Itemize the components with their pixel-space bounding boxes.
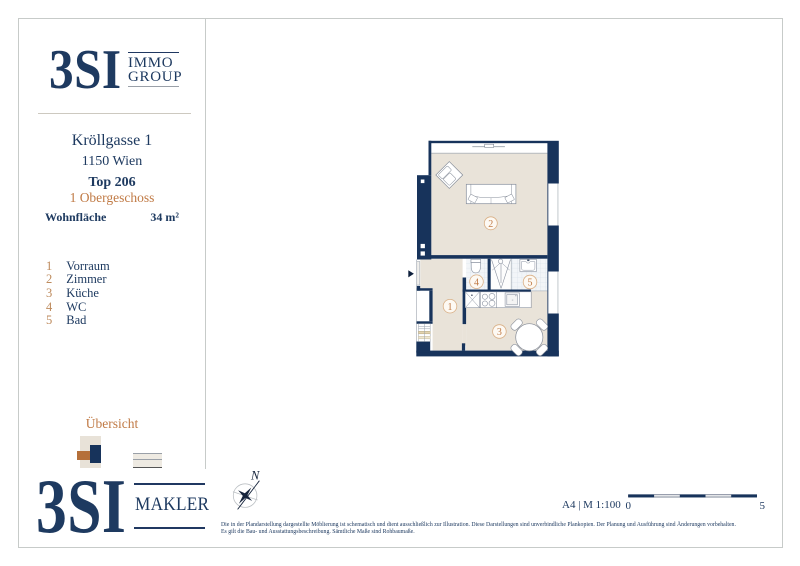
svg-text:5: 5: [528, 278, 533, 289]
svg-text:3: 3: [497, 327, 502, 338]
svg-text:1: 1: [448, 302, 453, 313]
svg-text:4: 4: [474, 277, 479, 288]
svg-text:N: N: [250, 469, 260, 483]
svg-text:2: 2: [488, 219, 493, 230]
